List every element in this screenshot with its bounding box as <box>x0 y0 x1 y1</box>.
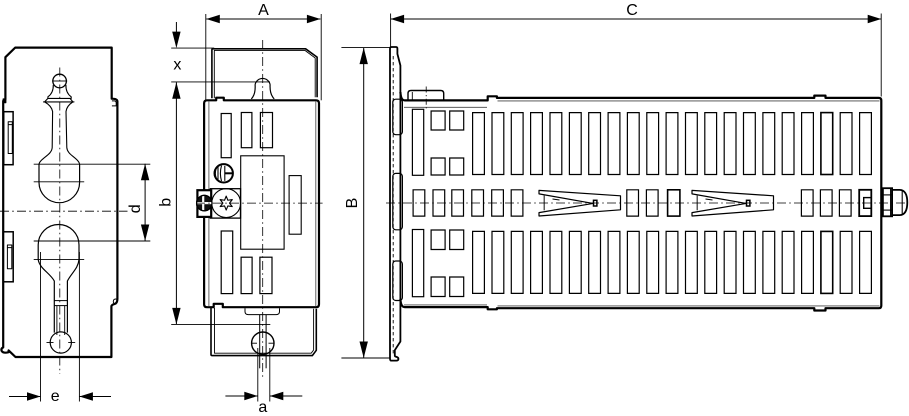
svg-text:x: x <box>173 56 181 73</box>
svg-text:a: a <box>258 399 267 416</box>
svg-text:d: d <box>127 204 144 213</box>
svg-text:A: A <box>258 2 269 19</box>
svg-text:C: C <box>626 2 638 19</box>
svg-text:b: b <box>158 198 175 207</box>
svg-text:e: e <box>51 388 60 405</box>
svg-text:B: B <box>344 198 361 209</box>
